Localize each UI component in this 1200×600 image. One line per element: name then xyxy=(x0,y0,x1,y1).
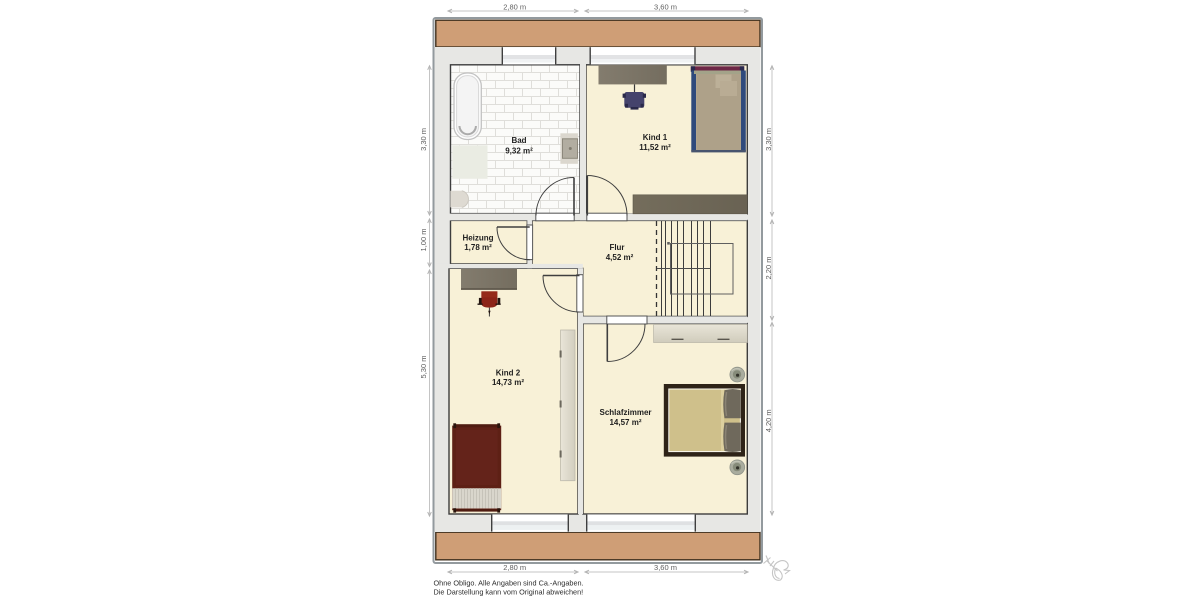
svg-text:3,60 m: 3,60 m xyxy=(654,563,677,572)
svg-text:Bad: Bad xyxy=(511,136,526,145)
svg-text:Schlafzimmer: Schlafzimmer xyxy=(599,408,651,417)
svg-text:Die Darstellung kann vom Origi: Die Darstellung kann vom Original abweic… xyxy=(434,587,584,596)
svg-text:2,80 m: 2,80 m xyxy=(503,563,526,572)
svg-text:14,73 m²: 14,73 m² xyxy=(492,378,524,387)
svg-text:Heizung: Heizung xyxy=(462,233,493,242)
svg-text:5,30 m: 5,30 m xyxy=(419,356,428,379)
svg-text:Kind 1: Kind 1 xyxy=(643,133,668,142)
svg-text:Ohne Obligo. Alle Angaben sind: Ohne Obligo. Alle Angaben sind Ca.-Angab… xyxy=(434,579,584,588)
svg-text:4,52 m²: 4,52 m² xyxy=(606,253,634,262)
svg-text:1,00 m: 1,00 m xyxy=(419,229,428,252)
svg-text:14,57 m²: 14,57 m² xyxy=(609,418,641,427)
svg-text:Flur: Flur xyxy=(609,243,624,252)
svg-text:3,30 m: 3,30 m xyxy=(764,128,773,151)
svg-text:3,60 m: 3,60 m xyxy=(654,3,677,12)
svg-text:2,80 m: 2,80 m xyxy=(503,3,526,12)
svg-text:1,78 m²: 1,78 m² xyxy=(464,243,492,252)
svg-text:3,30 m: 3,30 m xyxy=(419,128,428,151)
svg-text:4,20 m: 4,20 m xyxy=(764,409,773,432)
svg-text:9,32 m²: 9,32 m² xyxy=(505,147,533,156)
svg-text:2,20 m: 2,20 m xyxy=(764,257,773,280)
svg-text:11,52 m²: 11,52 m² xyxy=(639,143,671,152)
svg-text:Kind 2: Kind 2 xyxy=(496,368,521,377)
